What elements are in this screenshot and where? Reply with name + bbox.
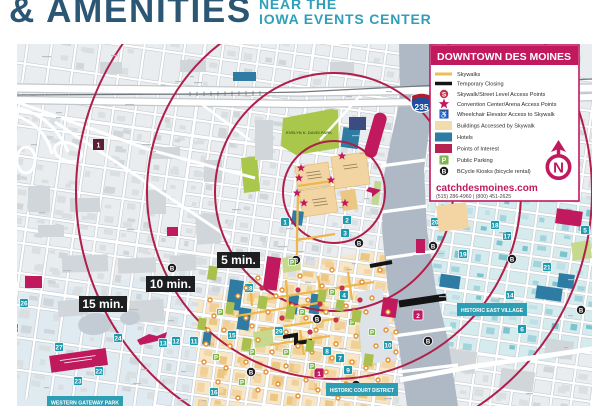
svg-text:26: 26: [20, 301, 28, 308]
svg-text:B: B: [426, 339, 431, 345]
svg-text:Wheelchair Elevator Access to: Wheelchair Elevator Access to Skywalk: [457, 112, 555, 118]
svg-text:♿: ♿: [440, 110, 449, 119]
svg-text:HISTORIC COURT DISTRICT: HISTORIC COURT DISTRICT: [330, 388, 395, 394]
svg-text:P: P: [250, 350, 254, 356]
svg-text:Public Parking: Public Parking: [457, 158, 493, 164]
svg-text:(515) 286-4960 | (800) 451-262: (515) 286-4960 | (800) 451-2625: [436, 194, 511, 200]
svg-text:27: 27: [55, 345, 63, 352]
svg-text:17: 17: [503, 234, 511, 241]
svg-text:5: 5: [583, 228, 587, 235]
svg-text:10 min.: 10 min.: [150, 277, 191, 291]
svg-text:29: 29: [275, 329, 283, 336]
svg-text:6: 6: [520, 327, 524, 334]
svg-text:Hotels: Hotels: [457, 135, 473, 141]
svg-text:P: P: [240, 380, 244, 386]
svg-text:B: B: [315, 317, 320, 323]
svg-text:P: P: [310, 364, 314, 370]
svg-text:235: 235: [414, 102, 428, 112]
svg-text:8: 8: [325, 349, 329, 356]
svg-text:12: 12: [172, 339, 180, 346]
svg-text:BCycle Kiosks (bicycle rental): BCycle Kiosks (bicycle rental): [457, 169, 531, 175]
svg-text:N: N: [553, 160, 564, 177]
svg-text:2: 2: [416, 313, 420, 320]
svg-text:4: 4: [342, 293, 346, 300]
svg-text:P: P: [300, 310, 304, 316]
svg-text:10: 10: [384, 343, 392, 350]
svg-text:Skywalks: Skywalks: [457, 72, 481, 78]
svg-text:HISTORIC EAST VILLAGE: HISTORIC EAST VILLAGE: [461, 308, 523, 314]
svg-text:21: 21: [543, 265, 551, 272]
svg-text:Convention Center/Arena Access: Convention Center/Arena Access Points: [457, 102, 557, 108]
svg-text:24: 24: [114, 336, 122, 343]
svg-text:Buildings Accessed by Skywalk: Buildings Accessed by Skywalk: [457, 124, 535, 130]
svg-text:WESTERN GATEWAY PARK: WESTERN GATEWAY PARK: [51, 401, 119, 406]
svg-text:P: P: [214, 355, 218, 361]
svg-text:11: 11: [191, 339, 198, 346]
svg-text:1: 1: [317, 371, 321, 378]
svg-text:DOWNTOWN DES MOINES: DOWNTOWN DES MOINES: [437, 51, 571, 63]
svg-text:22: 22: [95, 369, 103, 376]
svg-text:19: 19: [459, 252, 467, 259]
svg-text:Skywalk/Street Level Access Po: Skywalk/Street Level Access Points: [457, 92, 545, 98]
svg-text:P: P: [370, 330, 374, 336]
svg-text:S: S: [442, 91, 447, 98]
svg-text:catchdesmoines.com: catchdesmoines.com: [436, 183, 538, 194]
svg-text:3: 3: [343, 231, 347, 238]
svg-text:P: P: [290, 260, 294, 266]
svg-text:18: 18: [491, 223, 499, 230]
svg-text:Temporary Closing: Temporary Closing: [457, 82, 504, 88]
svg-text:14: 14: [506, 293, 514, 300]
svg-text:B: B: [357, 241, 362, 247]
svg-text:P: P: [218, 310, 222, 316]
svg-text:P: P: [330, 290, 334, 296]
svg-text:B: B: [510, 257, 515, 263]
svg-text:23: 23: [74, 379, 82, 386]
svg-text:5 min.: 5 min.: [221, 253, 256, 267]
svg-text:P: P: [284, 350, 288, 356]
svg-text:B: B: [442, 168, 447, 175]
svg-text:EVELYN K. DAVIS PARK: EVELYN K. DAVIS PARK: [286, 130, 332, 135]
svg-text:B: B: [170, 266, 175, 272]
svg-text:9: 9: [346, 368, 350, 375]
svg-text:25: 25: [10, 326, 18, 333]
svg-text:13: 13: [159, 341, 167, 348]
svg-text:15: 15: [228, 333, 236, 340]
svg-text:Points of Interest: Points of Interest: [457, 147, 499, 153]
svg-text:15 min.: 15 min.: [82, 297, 123, 311]
svg-text:2: 2: [345, 218, 349, 225]
svg-text:P: P: [442, 158, 447, 165]
svg-text:7: 7: [338, 356, 342, 363]
svg-text:B: B: [249, 370, 254, 376]
svg-text:1: 1: [97, 143, 101, 150]
svg-text:B: B: [579, 308, 584, 314]
svg-text:1: 1: [283, 220, 287, 227]
svg-text:B: B: [431, 244, 436, 250]
svg-text:16: 16: [210, 390, 218, 397]
